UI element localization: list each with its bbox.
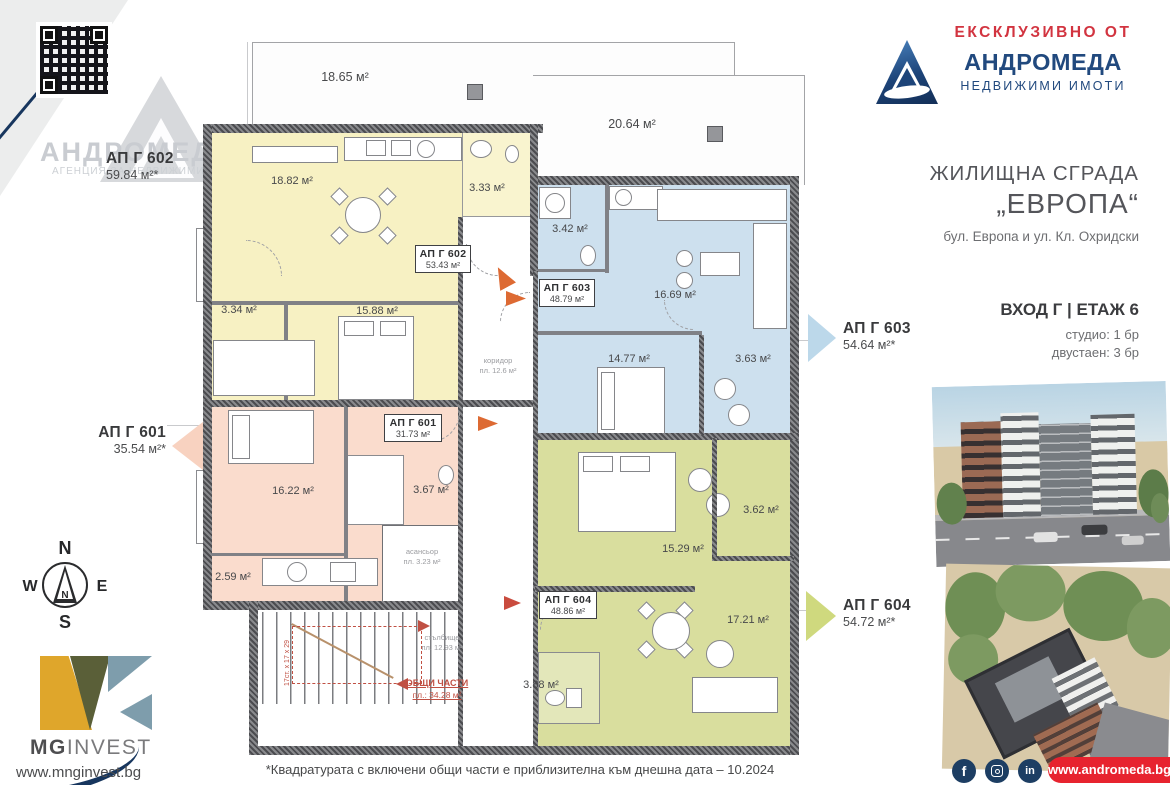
unit-mix-2room: двустаен: 3 бр	[915, 345, 1139, 360]
dining-table-symbol	[652, 612, 690, 650]
apartment-area: 48.86 м²	[543, 606, 593, 616]
shower-drain-symbol	[545, 193, 565, 213]
terrace-right-area: 20.64 м²	[592, 117, 672, 131]
room-area-label: 3.42 м²	[536, 223, 604, 235]
elevator-name: асансьор	[406, 547, 438, 556]
project-title-line1: ЖИЛИЩНА СГРАДА	[915, 162, 1139, 186]
washer-symbol	[566, 688, 582, 708]
wall	[699, 335, 704, 435]
facebook-glyph: f	[962, 763, 967, 779]
wall	[533, 176, 799, 185]
agency-tagline: НЕДВИЖИМИ ИМОТИ	[948, 79, 1138, 93]
partition-wall	[535, 331, 702, 335]
wall	[458, 217, 463, 746]
project-address: бул. Европа и ул. Кл. Охридски	[915, 229, 1139, 244]
corridor-region	[462, 217, 535, 650]
linkedin-icon[interactable]: in	[1018, 759, 1042, 783]
linkedin-glyph: in	[1025, 765, 1035, 777]
sink-symbol	[470, 140, 492, 158]
wall	[249, 601, 258, 755]
sofa-symbol	[753, 223, 787, 329]
corridor-name: коридор	[484, 356, 513, 365]
balcony-chair-symbol	[728, 404, 750, 426]
wall	[712, 556, 794, 561]
render-tower-glass	[1039, 423, 1093, 516]
qr-finder-bl	[40, 76, 58, 94]
appliance-symbol	[391, 140, 411, 156]
callout-g602-name: АП Г 602	[106, 150, 174, 168]
apartment-area: 31.73 м²	[388, 429, 438, 439]
wall	[712, 438, 717, 560]
terrace-column	[467, 84, 483, 100]
apartment-label-box-602: АП Г 602 53.43 м²	[415, 245, 471, 273]
sofa-symbol	[657, 189, 787, 221]
developer-name: MGINVEST	[30, 736, 152, 760]
callout-g603-area: 54.64 м²*	[843, 338, 911, 352]
dimension-line	[167, 425, 203, 426]
pillow-symbol	[620, 456, 650, 472]
room-area-label: 15.29 м²	[648, 543, 718, 555]
rug-symbol	[706, 640, 734, 668]
common-parts-area: пл.: 34.28 м²	[413, 690, 462, 700]
wall	[530, 124, 538, 276]
partition-wall	[210, 553, 346, 556]
mg-logo-blue-bottom-shape	[120, 694, 152, 730]
callout-g601: АП Г 601 35.54 м²*	[80, 424, 166, 456]
apartment-label-box-604: АП Г 604 48.86 м²	[539, 591, 597, 619]
terrace-column	[707, 126, 723, 142]
pillow-symbol	[601, 372, 615, 430]
compass-rose: N W E S N	[20, 538, 120, 638]
qr-finder-tl	[40, 26, 58, 44]
compass-north-label: N	[57, 538, 73, 559]
compass-west-label: W	[20, 578, 40, 596]
callout-g601-area: 35.54 м²*	[80, 442, 166, 456]
render-car	[1081, 525, 1107, 536]
balcony-chair-symbol	[714, 378, 736, 400]
elevator-label: асансьор пл. 3.23 м²	[384, 547, 460, 567]
toilet-symbol	[580, 245, 596, 266]
wall	[249, 746, 799, 755]
callout-g602-area: 59.84 м²*	[106, 168, 174, 182]
staircase-area: пл. 12.93 м²	[421, 643, 462, 652]
exclusive-banner: ЕКСКЛУЗИВНО ОТ АНДРОМЕДА НЕДВИЖИМИ ИМОТИ	[948, 24, 1138, 93]
project-title-line2: „ЕВРОПА“	[915, 188, 1139, 220]
wall	[790, 176, 799, 755]
armchair-symbol	[706, 493, 730, 517]
render-tree	[1126, 597, 1170, 658]
compass-inner-n-label: N	[59, 590, 71, 601]
corridor-area: пл. 12.6 м²	[480, 366, 517, 375]
partition-wall	[535, 269, 607, 272]
toilet-symbol	[438, 465, 454, 485]
room-area-label: 16.22 м²	[258, 485, 328, 497]
developer-name-light: INVEST	[67, 736, 152, 759]
chair-symbol	[676, 250, 693, 267]
entrance-floor-label: ВХОД Г | ЕТАЖ 6	[915, 300, 1139, 320]
terrace-left-area: 18.65 м²	[305, 70, 385, 84]
developer-website-link[interactable]: www.mnginvest.bg	[16, 764, 141, 781]
appliance-symbol	[366, 140, 386, 156]
wall	[203, 601, 462, 610]
common-parts-label: ОБЩИ ЧАСТИ пл.: 34.28 м²	[398, 677, 476, 702]
render-car	[1034, 532, 1058, 543]
pillow-symbol	[232, 415, 250, 459]
compass-east-label: E	[92, 578, 112, 596]
sofa-symbol	[213, 340, 315, 396]
room-area-label: 14.77 м²	[594, 353, 664, 365]
footer-disclaimer: *Квадратурата с включени общи части е пр…	[240, 762, 800, 777]
callout-g602: АП Г 602 59.84 м²*	[106, 150, 174, 182]
render-tower-brick	[961, 421, 1003, 518]
dining-table-symbol	[345, 197, 381, 233]
apartment-area: 48.79 м²	[543, 294, 591, 304]
instagram-lens	[995, 769, 1000, 774]
qr-code	[36, 22, 112, 98]
pillow-symbol	[344, 321, 374, 336]
flyer-sheet: АНДРОМЕДА АГЕНЦИЯ ЗА НЕДВИЖИМИ ИМОТИ АП …	[0, 0, 1170, 785]
room-area-label: 3.67 м²	[397, 484, 465, 496]
room-area-label: 2.59 м²	[201, 571, 265, 583]
pillow-symbol	[583, 456, 613, 472]
wall	[203, 124, 212, 610]
render-car	[1122, 536, 1144, 546]
common-parts-title: ОБЩИ ЧАСТИ	[406, 678, 468, 688]
stair-route-dashed	[292, 626, 422, 684]
render-tower-white	[1090, 414, 1137, 515]
cooktop-symbol	[615, 189, 632, 206]
unit-mix-studio: студио: 1 бр	[915, 327, 1139, 342]
utility-shaft	[346, 455, 404, 525]
project-info: ЖИЛИЩНА СГРАДА „ЕВРОПА“ бул. Европа и ул…	[915, 162, 1139, 244]
room-area-label: 3.63 м²	[718, 353, 788, 365]
agency-name: АНДРОМЕДА	[948, 49, 1138, 76]
callout-g604-name: АП Г 604	[843, 597, 911, 615]
building-render-aerial	[942, 564, 1170, 774]
room-area-label: 16.69 м²	[640, 289, 710, 301]
room-area-label: 17.21 м²	[713, 614, 783, 626]
apartment-id: АП Г 604	[543, 594, 593, 606]
exclusive-label: ЕКСКЛУЗИВНО ОТ	[948, 24, 1138, 42]
wall	[203, 400, 537, 407]
room-area-label: 18.82 м²	[257, 175, 327, 187]
cooktop-symbol	[287, 562, 307, 582]
wardrobe-symbol	[252, 146, 338, 163]
wall	[203, 124, 543, 133]
room-area-label: 3.62 м²	[729, 504, 793, 516]
instagram-icon[interactable]	[985, 759, 1009, 783]
callout-g604: АП Г 604 54.72 м²*	[843, 597, 911, 629]
elevator-area: пл. 3.23 м²	[404, 557, 441, 566]
room-area-label: 3.33 м²	[452, 182, 522, 194]
agency-website-link[interactable]: www.andromeda.bg	[1048, 762, 1170, 777]
room-area-label: 15.88 м²	[342, 305, 412, 317]
sink-symbol	[545, 690, 565, 706]
armchair-symbol	[688, 468, 712, 492]
building-render-street	[932, 381, 1170, 567]
entrance-info: ВХОД Г | ЕТАЖ 6 студио: 1 бр двустаен: 3…	[915, 300, 1139, 360]
toilet-symbol	[505, 145, 519, 163]
apartment-id: АП Г 602	[419, 248, 467, 260]
facebook-icon[interactable]: f	[952, 759, 976, 783]
corridor-label: коридор пл. 12.6 м²	[465, 356, 531, 376]
stair-dimension-label: 17ст. х 17 х 29	[283, 624, 292, 686]
apartment-id: АП Г 603	[543, 282, 591, 294]
chair-symbol	[676, 272, 693, 289]
coffee-table-symbol	[700, 252, 740, 276]
apartment-label-box-603: АП Г 603 48.79 м²	[539, 279, 595, 307]
callout-g603-name: АП Г 603	[843, 320, 911, 338]
dimension-line	[247, 42, 248, 126]
staircase-name: стълбище	[425, 633, 460, 642]
callout-arrow-g604	[806, 591, 836, 641]
mg-logo-blue-top-shape	[108, 656, 152, 692]
developer-name-bold: MG	[30, 736, 67, 759]
apartment-area: 53.43 м²	[419, 260, 467, 270]
qr-finder-tr	[90, 26, 108, 44]
wall	[533, 271, 538, 746]
callout-g603: АП Г 603 54.64 м²*	[843, 320, 911, 352]
callout-g604-area: 54.72 м²*	[843, 615, 911, 629]
apartment-label-box-601: АП Г 601 31.73 м²	[384, 414, 442, 442]
compass-south-label: S	[57, 612, 73, 633]
render-tower-white	[1000, 412, 1041, 517]
agency-website-banner[interactable]: www.andromeda.bg	[1048, 757, 1170, 783]
render-tree	[995, 564, 1066, 623]
callout-g601-name: АП Г 601	[80, 424, 166, 442]
cooktop-symbol	[417, 140, 435, 158]
callout-arrow-g603	[808, 314, 836, 362]
kitchen-counter-symbol	[262, 558, 378, 586]
sink-symbol	[330, 562, 356, 582]
staircase-label: стълбище пл. 12.93 м²	[412, 633, 472, 653]
wall	[533, 433, 799, 440]
pillow-symbol	[380, 321, 406, 336]
sofa-symbol	[692, 677, 778, 713]
apartment-id: АП Г 601	[388, 417, 438, 429]
room-area-label: 3.34 м²	[206, 304, 272, 316]
room-area-label: 3.88 м²	[506, 679, 576, 691]
